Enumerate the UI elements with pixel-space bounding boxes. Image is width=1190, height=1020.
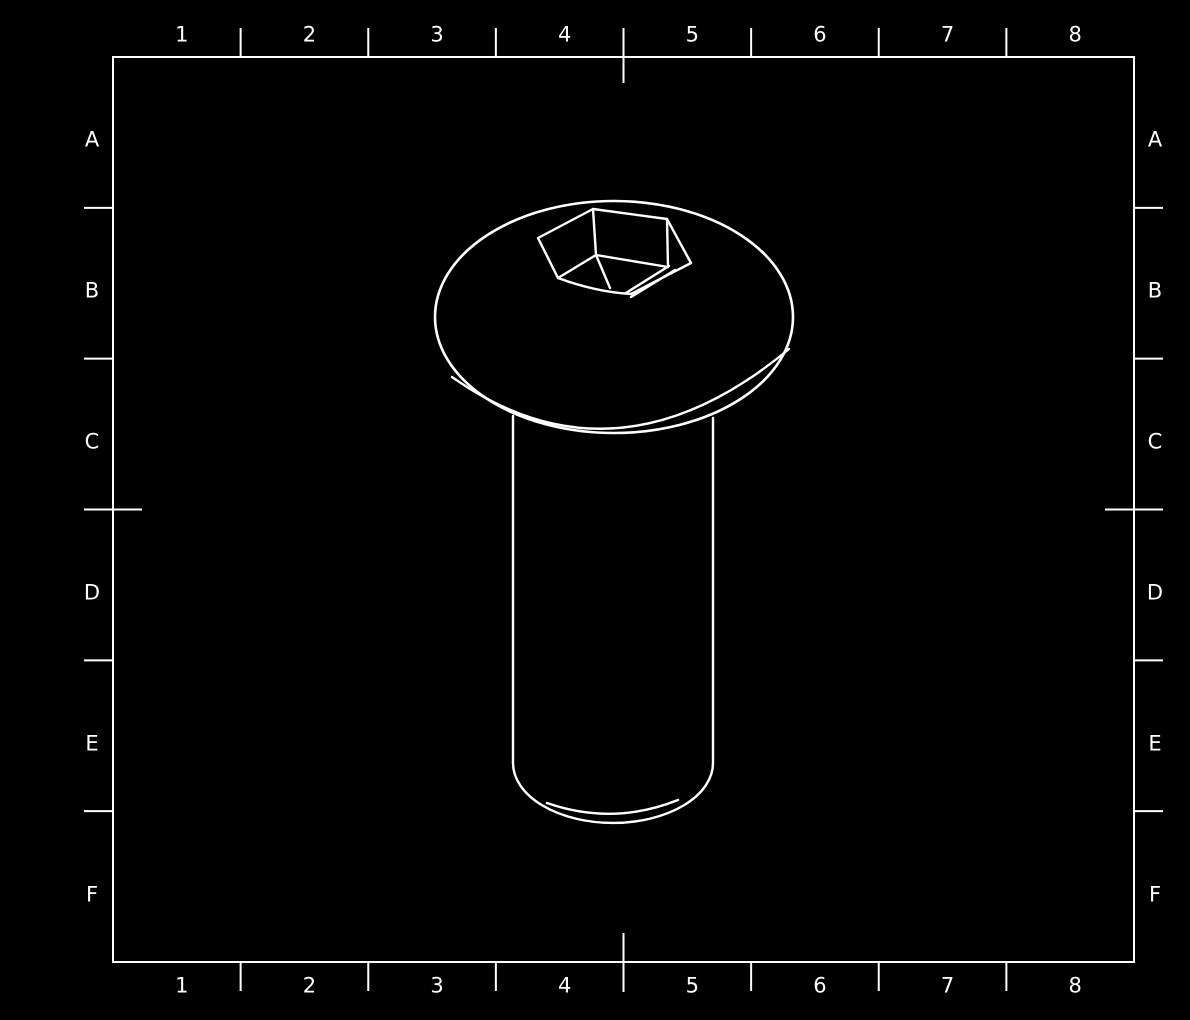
screw-head-outline bbox=[435, 201, 793, 433]
drawing-sheet: 1122334455667788AABBCCDDEEFF bbox=[0, 0, 1190, 1020]
column-label-top: 7 bbox=[941, 25, 954, 46]
column-label-bottom: 2 bbox=[303, 976, 316, 997]
row-label-right: D bbox=[1147, 582, 1163, 603]
column-label-top: 6 bbox=[813, 25, 826, 46]
grid-zone-ticks bbox=[84, 28, 1163, 992]
column-label-bottom: 3 bbox=[430, 976, 443, 997]
sheet-graphics bbox=[0, 0, 1190, 1020]
screw-shank-tip-chamfer-line bbox=[547, 800, 678, 814]
column-label-top: 8 bbox=[1069, 25, 1082, 46]
row-label-left: F bbox=[86, 884, 98, 905]
column-label-top: 3 bbox=[430, 25, 443, 46]
row-label-left: A bbox=[85, 130, 99, 151]
hex-socket-chamfer-line-1 bbox=[626, 266, 669, 293]
column-label-bottom: 8 bbox=[1069, 976, 1082, 997]
column-label-bottom: 1 bbox=[175, 976, 188, 997]
column-label-top: 2 bbox=[303, 25, 316, 46]
hex-socket-floor-edge bbox=[596, 255, 668, 267]
screw-isometric-drawing bbox=[435, 201, 793, 823]
row-label-right: F bbox=[1149, 884, 1161, 905]
row-label-right: E bbox=[1148, 733, 1161, 754]
column-label-top: 1 bbox=[175, 25, 188, 46]
hex-socket-inner-edge-front bbox=[596, 255, 610, 288]
hex-socket-inner-edge-right bbox=[667, 219, 668, 267]
column-label-top: 5 bbox=[686, 25, 699, 46]
column-label-bottom: 6 bbox=[813, 976, 826, 997]
row-label-right: B bbox=[1148, 281, 1162, 302]
hex-socket-inner-edge-back bbox=[593, 209, 596, 255]
row-label-left: D bbox=[84, 582, 100, 603]
row-label-right: A bbox=[1148, 130, 1162, 151]
hex-socket-chamfer-line-2 bbox=[631, 270, 675, 297]
row-label-left: E bbox=[85, 733, 98, 754]
row-label-right: C bbox=[1148, 432, 1163, 453]
column-label-bottom: 5 bbox=[686, 976, 699, 997]
column-label-top: 4 bbox=[558, 25, 571, 46]
screw-head-rim-edge bbox=[452, 349, 789, 429]
hex-socket-inner-edge-left bbox=[558, 255, 596, 278]
row-label-left: B bbox=[85, 281, 99, 302]
sheet-border bbox=[113, 57, 1134, 962]
column-label-bottom: 4 bbox=[558, 976, 571, 997]
column-label-bottom: 7 bbox=[941, 976, 954, 997]
row-label-left: C bbox=[85, 432, 100, 453]
